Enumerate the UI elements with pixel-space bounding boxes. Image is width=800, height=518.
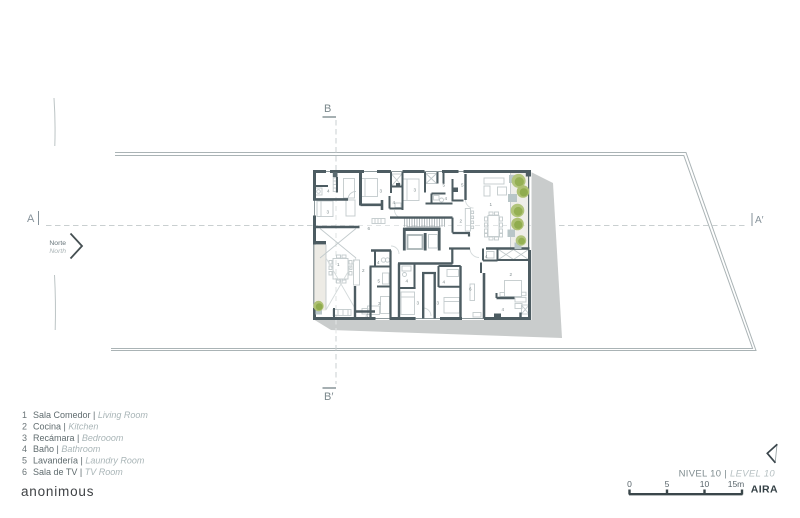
svg-text:5: 5 [665,479,670,489]
svg-text:6: 6 [22,467,27,477]
svg-text:4: 4 [406,279,409,284]
svg-text:3: 3 [414,188,417,193]
svg-text:4: 4 [377,260,380,265]
svg-text:5: 5 [443,183,446,188]
svg-text:4: 4 [22,444,27,454]
svg-text:Cocina | Kitchen: Cocina | Kitchen [33,421,98,431]
svg-text:3: 3 [417,301,420,306]
svg-text:2: 2 [510,272,513,277]
svg-text:AIRA: AIRA [751,484,778,496]
svg-text:4: 4 [393,200,396,205]
svg-text:1: 1 [490,202,493,207]
svg-text:2: 2 [22,421,27,431]
svg-text:A′: A′ [755,215,764,226]
svg-text:6: 6 [469,287,472,292]
svg-text:Baño | Bathroom: Baño | Bathroom [33,444,101,454]
svg-text:5: 5 [378,279,381,284]
svg-text:NIVEL 10 | LEVEL 10: NIVEL 10 | LEVEL 10 [679,469,776,480]
svg-text:4: 4 [443,280,446,285]
svg-text:B: B [324,103,331,115]
svg-text:5: 5 [22,456,27,466]
svg-text:0: 0 [627,479,632,489]
svg-text:1: 1 [337,262,340,267]
svg-text:Lavandería | Laundry Room: Lavandería | Laundry Room [33,456,145,466]
svg-text:4: 4 [327,189,330,194]
svg-text:4: 4 [502,307,505,312]
svg-text:3: 3 [380,189,383,194]
svg-text:4: 4 [485,254,488,259]
svg-text:3: 3 [327,210,330,215]
svg-text:3: 3 [378,301,381,306]
svg-text:1: 1 [22,410,27,420]
svg-text:4: 4 [366,313,369,318]
svg-text:4: 4 [445,196,448,201]
svg-text:2: 2 [362,268,365,273]
svg-text:anonimous: anonimous [21,484,94,499]
svg-text:10: 10 [700,479,710,489]
svg-text:2: 2 [460,219,463,224]
svg-text:5: 5 [461,183,464,188]
svg-text:6: 6 [368,226,371,231]
svg-text:B′: B′ [324,391,333,403]
svg-text:3: 3 [22,433,27,443]
svg-text:A: A [27,213,35,225]
svg-text:North: North [49,248,66,255]
svg-text:Sala de TV | TV Room: Sala de TV | TV Room [33,467,123,477]
svg-text:Recámara | Bedrooom: Recámara | Bedrooom [33,433,124,443]
svg-text:Sala Comedor | Living Room: Sala Comedor | Living Room [33,410,148,420]
svg-text:Norte: Norte [49,240,66,247]
svg-text:15m: 15m [728,479,745,489]
svg-text:3: 3 [437,301,440,306]
